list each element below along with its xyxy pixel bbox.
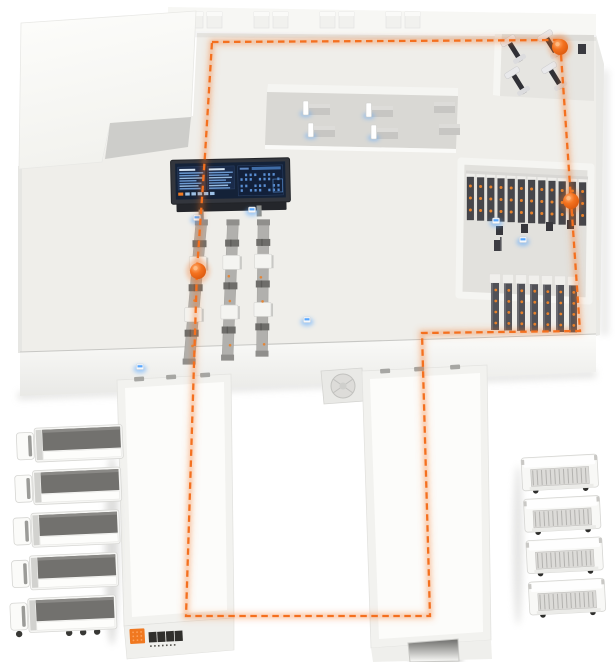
rack-front-box	[507, 311, 510, 314]
semi-truck	[14, 467, 121, 506]
route-marker-highlight	[555, 42, 559, 46]
skylight-cube-top	[386, 12, 401, 16]
rack-box	[540, 200, 543, 203]
dashboard-chart-dot	[245, 174, 247, 177]
dashboard-chart-dot	[241, 185, 243, 188]
workstation-monitor	[366, 103, 372, 117]
rack-box	[489, 210, 492, 213]
dashboard-chart-dot	[259, 178, 261, 181]
rack-front-box	[507, 300, 510, 303]
rack-front-highlight	[530, 284, 532, 331]
box-truck	[523, 495, 601, 535]
rack-front-highlight	[543, 285, 545, 332]
dashboard-chart-dot	[254, 184, 256, 187]
box-truck	[521, 454, 599, 494]
skylight-cube-top	[405, 12, 420, 16]
rack-box	[530, 188, 533, 191]
rack-front-box	[520, 311, 523, 314]
conveyor-roller	[256, 280, 270, 287]
conveyor-item	[229, 344, 232, 347]
dock-mark	[450, 364, 460, 369]
right-wing-door	[408, 639, 459, 662]
rack-front-box	[507, 322, 510, 325]
vent-fan-hub	[340, 383, 347, 390]
box-truck-mirror	[596, 496, 599, 501]
workstation-desk-top	[372, 106, 393, 110]
workstation-desk-top	[439, 124, 460, 128]
rack-front-box	[494, 289, 497, 292]
rack-front-box	[572, 324, 575, 327]
rack-front-box	[533, 301, 536, 304]
iot-sensor-screen	[138, 365, 143, 367]
logo-text: ▇▇▇▇	[148, 630, 184, 643]
semi-truck	[16, 424, 123, 463]
forklift-body	[494, 240, 500, 251]
rack-box	[479, 185, 482, 188]
conveyor-item	[229, 300, 232, 303]
workstation-desk-top	[314, 126, 335, 130]
workstation-desk-top	[377, 128, 398, 132]
rack-front-box	[520, 289, 523, 292]
rack-front-highlight	[491, 283, 493, 330]
rack-front-box	[559, 291, 562, 294]
forklift-mast	[500, 237, 502, 251]
conveyor-roller	[256, 239, 270, 246]
dashboard-panel-header	[209, 168, 225, 170]
rack-box	[479, 197, 482, 200]
semi-truck	[11, 552, 118, 591]
rack-front-cap	[503, 274, 514, 283]
route-marker	[548, 35, 572, 59]
warehouse-scene-svg: ▇▇▇▇▪ ▪ ▪ ▪ ▪ ▪ ▪	[0, 0, 615, 662]
dashboard-chart-dot	[259, 189, 261, 192]
rack-box	[530, 212, 533, 215]
dock-mark	[200, 372, 210, 377]
box-truck-mirror	[521, 460, 524, 465]
iot-sensor-screen	[305, 318, 310, 320]
rack-box	[551, 213, 554, 216]
conveyor-station	[223, 255, 240, 269]
conveyor-roller-stripe	[260, 323, 261, 330]
roof-band	[168, 7, 596, 35]
dashboard-chart-dot	[268, 173, 270, 176]
rack-front-box	[520, 300, 523, 303]
dock-device-box	[578, 44, 586, 54]
rack-box	[581, 214, 584, 217]
rack-front-box	[533, 290, 536, 293]
dashboard-chart-dot	[268, 178, 270, 181]
rack-box	[500, 210, 503, 213]
rack-front-cap	[542, 276, 553, 285]
rack-box	[520, 199, 523, 202]
rack-front-highlight	[556, 285, 558, 332]
conveyor-roller-stripe	[261, 280, 262, 287]
rack-front-box	[559, 302, 562, 305]
rack-box	[510, 211, 513, 214]
conveyor-item	[263, 343, 266, 346]
rack-box	[469, 209, 472, 212]
box-truck-mirror	[528, 584, 531, 589]
rack-front-box	[559, 313, 562, 316]
right-fleet-shadow	[513, 465, 523, 625]
rack-box	[561, 213, 564, 216]
conveyor-station	[221, 305, 238, 319]
conveyor-end-cap	[257, 219, 270, 225]
skylight-cube-top	[207, 12, 222, 16]
dock-mark	[166, 374, 176, 379]
conveyor-item	[261, 300, 264, 303]
dashboard-chart-dot	[277, 184, 279, 187]
dashboard-chip	[210, 192, 215, 195]
rack-front-box	[533, 312, 536, 315]
workstation-monitor	[308, 123, 314, 137]
box-truck-mirror	[599, 538, 602, 543]
dashboard-chip	[191, 192, 196, 195]
rack-front-highlight	[517, 284, 519, 331]
rack-device-box	[546, 222, 553, 231]
conveyor-item	[228, 275, 231, 278]
iot-sensor-screen	[521, 238, 526, 240]
rack-device-box	[521, 224, 528, 233]
conveyor-station	[255, 254, 272, 268]
dashboard-chart-dot	[250, 178, 252, 181]
conveyor-roller	[225, 240, 239, 247]
workstation-desk-top	[434, 102, 455, 106]
workstation-monitor	[303, 101, 309, 115]
route-marker-sphere	[563, 193, 579, 209]
rack-front-highlight	[504, 283, 506, 330]
route-marker-highlight	[193, 266, 197, 270]
warehouse-illustration: ▇▇▇▇▪ ▪ ▪ ▪ ▪ ▪ ▪	[0, 0, 615, 662]
dashboard-chart-title	[252, 166, 281, 170]
rack-front-highlight	[569, 285, 571, 332]
rack-front-box	[520, 322, 523, 325]
dashboard-chart-dot	[277, 188, 279, 191]
box-truck-mirror	[526, 543, 529, 548]
route-marker-highlight	[566, 196, 570, 200]
conveyor-end-cap	[226, 219, 239, 225]
rack-box	[520, 187, 523, 190]
conveyor-station	[254, 302, 271, 316]
rack-box	[520, 211, 523, 214]
rack-front-cap	[555, 276, 566, 285]
rack-box	[489, 198, 492, 201]
semi-truck	[10, 595, 118, 639]
rack-box	[581, 190, 584, 193]
dashboard-chart-dot	[245, 178, 247, 181]
rack-box	[469, 197, 472, 200]
workstation-desk-top	[309, 104, 330, 108]
dashboard-chart-label	[240, 168, 249, 170]
workstation-bay-floor	[265, 92, 458, 149]
rack-box	[500, 198, 503, 201]
conveyor-roller	[222, 327, 236, 334]
dashboard-chart-dot	[268, 189, 270, 192]
dock-mark	[380, 368, 390, 373]
conveyor-item	[260, 276, 263, 279]
rack-front-box	[546, 290, 549, 293]
rack-front-box	[494, 300, 497, 303]
box-truck	[526, 537, 604, 577]
dashboard-chart-dot	[254, 189, 256, 192]
dashboard-panel-header	[179, 169, 195, 171]
skylight-cube-top	[273, 12, 288, 16]
rack-front-box	[507, 289, 510, 292]
box-truck	[528, 578, 606, 618]
route-marker	[186, 259, 210, 283]
rack-front-box	[546, 312, 549, 315]
dashboard-chart-dot	[250, 189, 252, 192]
rack-box	[551, 189, 554, 192]
route-marker-sphere	[190, 263, 206, 279]
dashboard-chart-dot	[241, 189, 243, 192]
truck-wheel	[16, 631, 23, 638]
rack-front-box	[533, 323, 536, 326]
rack-box	[469, 185, 472, 188]
dashboard-chip	[185, 192, 190, 195]
iot-sensor-screen	[250, 208, 255, 210]
rack-box	[530, 200, 533, 203]
route-marker	[559, 189, 583, 213]
dashboard-chart-dot	[263, 173, 265, 176]
dashboard-chart-dot	[254, 173, 256, 176]
rack-box	[500, 186, 503, 189]
rack-front-cap	[529, 275, 540, 284]
skylight-cube-top	[339, 12, 354, 16]
rack-device-box	[496, 226, 503, 235]
rack-box	[510, 199, 513, 202]
skylight-cube-top	[254, 12, 269, 16]
dashboard-chart-dot	[240, 178, 242, 181]
left-wing-roof-panel	[125, 382, 227, 617]
dock-mark	[134, 376, 144, 381]
conveyor-roller-stripe	[227, 327, 228, 334]
box-truck-mirror	[524, 501, 527, 506]
workstation-monitor	[371, 125, 377, 139]
rack-box	[510, 187, 513, 190]
box-truck-mirror	[601, 579, 604, 584]
dashboard-chart-dot	[273, 173, 275, 176]
skylight-cube-top	[320, 12, 335, 16]
box-truck-mirror	[594, 455, 597, 460]
rack-front-box	[546, 323, 549, 326]
route-marker-sphere	[552, 39, 568, 55]
conveyor-end-cap	[256, 351, 269, 357]
dashboard-chart-dot	[259, 184, 261, 187]
rack-front-box	[494, 311, 497, 314]
rack-front-cap	[490, 274, 501, 283]
platform-left-edge	[18, 166, 22, 353]
dashboard-chart-dot	[264, 184, 266, 187]
conveyor-roller-stripe	[228, 282, 229, 289]
conveyor-roller-stripe	[230, 240, 231, 247]
conveyor-roller	[255, 323, 269, 330]
rack-front-box	[546, 301, 549, 304]
conveyor-roller-stripe	[261, 239, 262, 246]
dashboard-chart-dot	[245, 185, 247, 188]
rack-box	[479, 209, 482, 212]
rack-box	[540, 188, 543, 191]
rack-box	[489, 186, 492, 189]
semi-truck	[13, 510, 120, 549]
dashboard-chart-dot	[263, 178, 265, 181]
rack-box	[551, 201, 554, 204]
conveyor-roller	[223, 282, 237, 289]
dashboard-chip-accent	[178, 192, 183, 195]
rack-front-box	[559, 324, 562, 327]
rack-box	[561, 189, 564, 192]
rack-front-cap	[516, 275, 527, 284]
rack-front-box	[494, 322, 497, 325]
conveyor-end-cap	[221, 355, 234, 361]
dashboard-chart-dot	[250, 174, 252, 177]
iot-sensor-screen	[494, 219, 499, 221]
rack-box	[540, 212, 543, 215]
